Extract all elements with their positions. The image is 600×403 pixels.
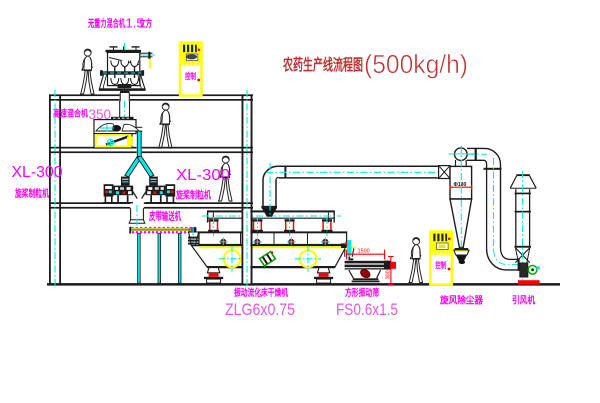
svg-text:ZLG6x0.75: ZLG6x0.75 <box>225 301 295 319</box>
svg-text:350: 350 <box>89 107 112 122</box>
svg-text:XL-300: XL-300 <box>176 167 230 184</box>
svg-text:方形振动筛: 方形振动筛 <box>345 287 379 299</box>
svg-text:300: 300 <box>385 270 391 279</box>
svg-text:旋风除尘器: 旋风除尘器 <box>439 295 483 307</box>
svg-text:立方: 立方 <box>139 17 152 30</box>
svg-text:(500kg/h): (500kg/h) <box>364 49 468 79</box>
svg-text:FS0.6x1.5: FS0.6x1.5 <box>336 301 398 319</box>
svg-text:1500: 1500 <box>358 249 370 255</box>
svg-text:Φ180: Φ180 <box>454 182 467 188</box>
svg-text:XL-300: XL-300 <box>12 164 63 181</box>
svg-text:无重力混合机: 无重力混合机 <box>87 17 125 30</box>
svg-text:旋桨制粒机: 旋桨制粒机 <box>175 189 211 202</box>
svg-text:皮带输送机: 皮带输送机 <box>148 210 181 223</box>
svg-text:农药生产线流程图: 农药生产线流程图 <box>282 55 363 74</box>
svg-text:引风机: 引风机 <box>512 295 535 307</box>
svg-text:高速混合机: 高速混合机 <box>53 108 89 119</box>
svg-text:振动流化床干燥机: 振动流化床干燥机 <box>234 287 288 299</box>
svg-text:旋桨制粒机: 旋桨制粒机 <box>14 187 49 200</box>
